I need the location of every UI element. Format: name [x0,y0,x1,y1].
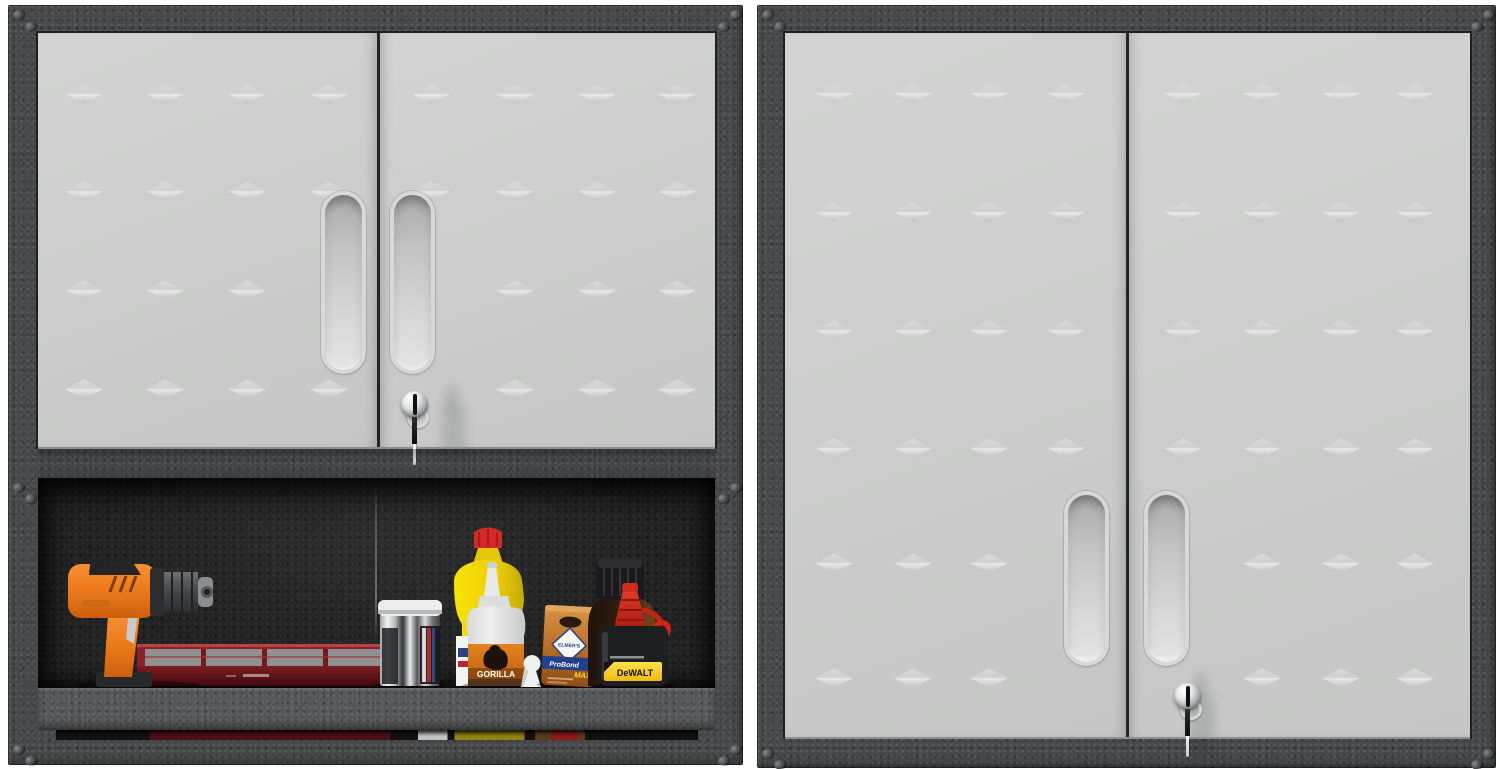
mid-rail-shade [38,449,715,478]
embossed-diamond [578,85,616,104]
embossed-diamond [1322,321,1360,340]
embossed-diamond [1396,554,1434,573]
elmers-label: ELMER'S [558,642,581,649]
embossed-diamond [1164,439,1202,458]
embossed-diamond [496,380,534,399]
embossed-diamond [1322,554,1360,573]
embossed-diamond [578,380,616,399]
dewalt-label: DeWALT [617,668,654,678]
embossed-diamond [1164,321,1202,340]
open-compartment: GORILLA ELMER'S [38,478,715,688]
embossed-diamond [496,182,534,201]
embossed-diamond [1396,203,1434,222]
right-door-handle [394,195,431,370]
door-lock [1174,683,1201,710]
lock-cylinder [401,391,428,418]
embossed-diamond [658,85,696,104]
left-door-handle [325,195,362,370]
embossed-diamond [1396,321,1434,340]
gorilla-label: GORILLA [477,669,515,679]
key-tip [1186,736,1189,757]
stud-grid-right-door [38,33,715,447]
embossed-diamond [1396,439,1434,458]
embossed-diamond [1164,84,1202,103]
embossed-diamond [1243,203,1281,222]
product-image: GORILLA ELMER'S [0,0,1500,769]
embossed-diamond [658,281,696,300]
embossed-diamond [1243,669,1281,688]
door-edge-highlight [785,737,1470,739]
lock-cylinder [1174,683,1201,710]
embossed-diamond [1322,203,1360,222]
embossed-diamond [1322,439,1360,458]
embossed-diamond [1322,669,1360,688]
embossed-diamond [412,85,450,104]
item-organizer-tray [137,644,398,688]
embossed-diamond [658,182,696,201]
shelf-front-lip [38,688,715,730]
embossed-diamond [1243,439,1281,458]
embossed-diamond [578,281,616,300]
embossed-diamond [1322,84,1360,103]
shelf-items: GORILLA ELMER'S [38,478,715,688]
embossed-diamond [578,182,616,201]
embossed-diamond [1396,84,1434,103]
embossed-diamond [496,85,534,104]
door-area [38,33,715,447]
embossed-diamond [1243,84,1281,103]
door-lock [401,391,428,418]
embossed-diamond [1164,203,1202,222]
embossed-diamond [1243,554,1281,573]
door-area [785,33,1470,737]
stud-grid-right-door [785,33,1470,737]
cabinet-open-view: GORILLA ELMER'S [8,5,743,765]
embossed-diamond [658,380,696,399]
embossed-diamond [1243,321,1281,340]
key-shaft [412,417,417,444]
embossed-diamond [496,281,534,300]
cabinet-closed-view [757,5,1496,768]
item-metal-can [374,600,446,688]
left-door-handle [1068,495,1105,662]
under-lip-slot [56,730,698,740]
key-shaft [1185,709,1190,736]
embossed-diamond [1396,669,1434,688]
right-door-handle [1148,495,1185,662]
